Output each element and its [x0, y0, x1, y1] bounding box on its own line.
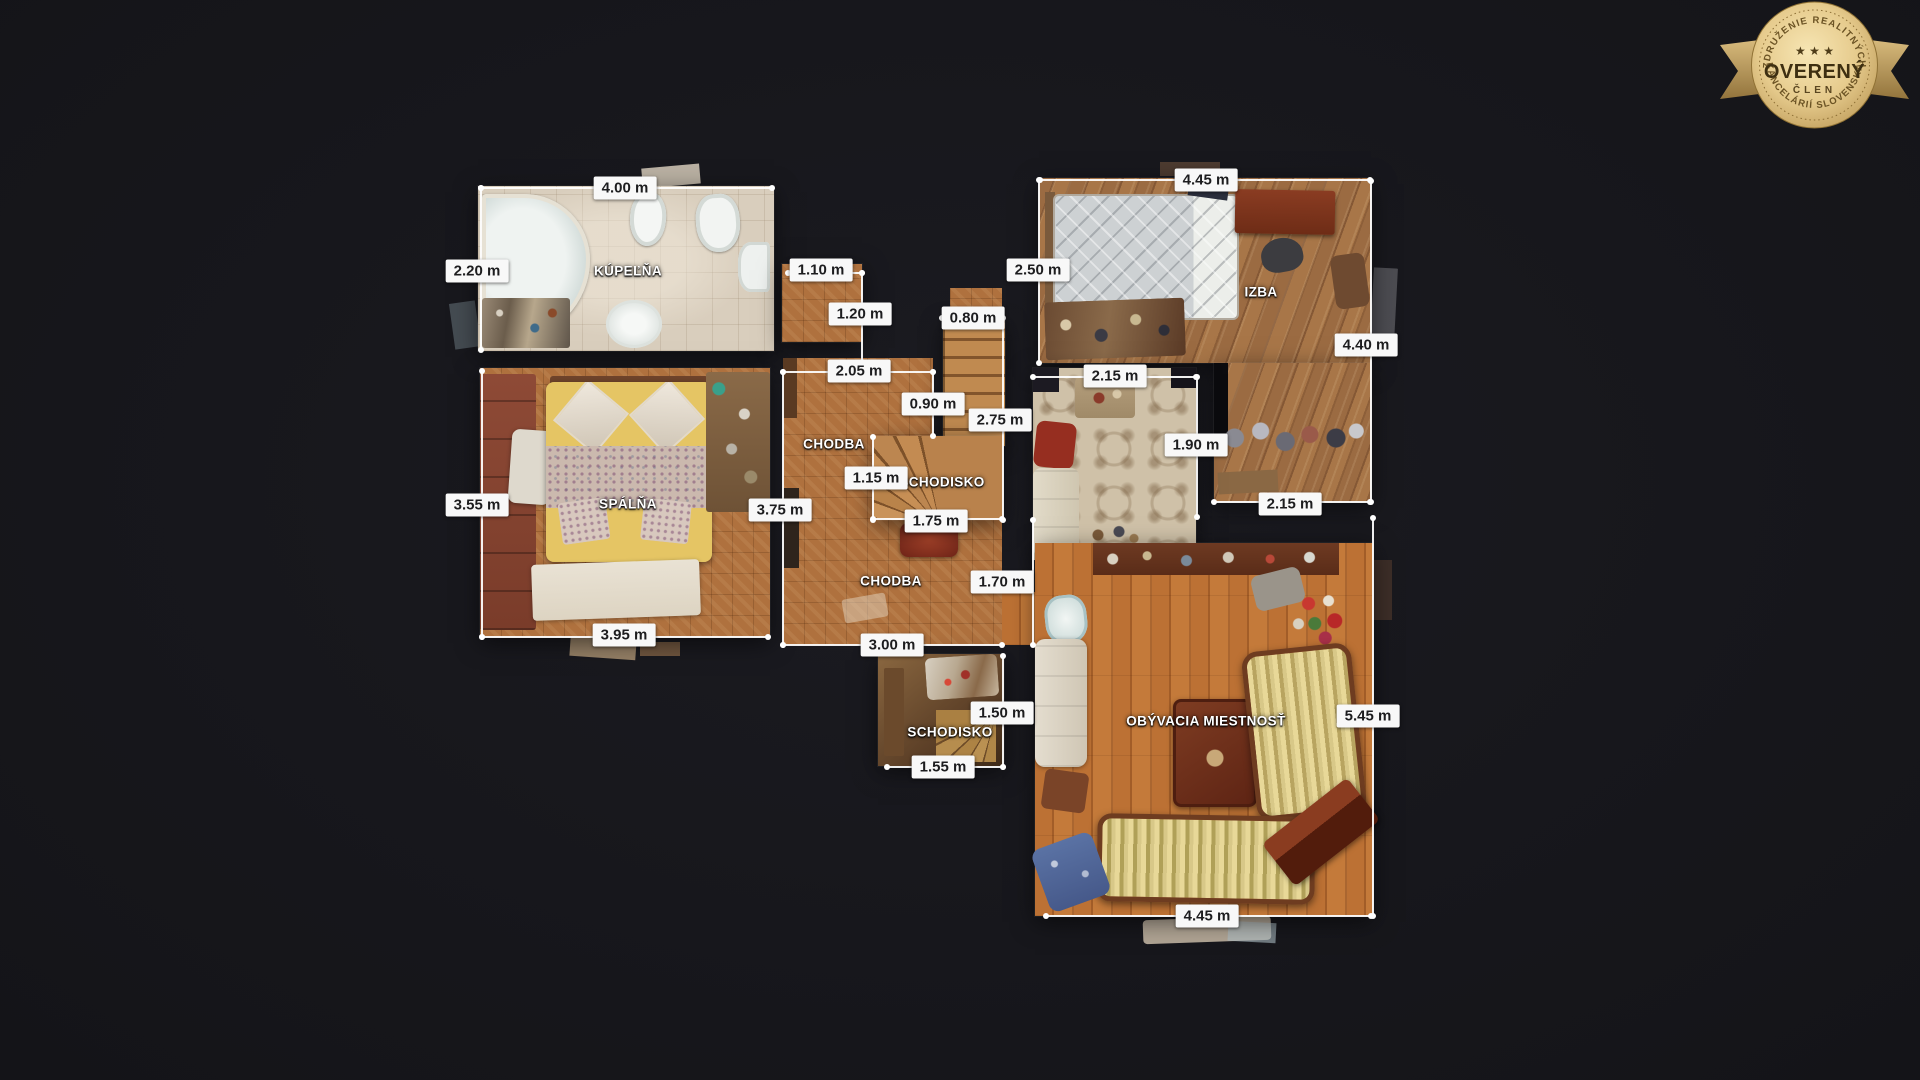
dim-entry-width: 1.10 m: [790, 259, 853, 282]
toilet: [694, 193, 742, 254]
label-chodba-upper: CHODBA: [803, 437, 865, 452]
dim-izba-depth: 2.50 m: [1007, 259, 1070, 282]
label-izba: IZBA: [1244, 285, 1277, 300]
room-izba[interactable]: [1039, 178, 1371, 363]
label-obyvacia: OBÝVACIA MIESTNOSŤ: [1126, 714, 1285, 729]
room-tiled-hall[interactable]: [1033, 368, 1196, 560]
bedroom-rug: [531, 559, 701, 621]
dim-kupelna-depth: 2.20 m: [446, 260, 509, 283]
dim-stairs-mid-width: 0.90 m: [902, 393, 965, 416]
desk: [1235, 189, 1336, 235]
dim-schodisko2-depth: 1.50 m: [971, 702, 1034, 725]
wardrobe: [706, 372, 770, 512]
verified-member-badge: ZDRUŽENIE REALITNÝCH KANCELÁRIÍ SLOVENSK…: [1712, 0, 1917, 135]
sink: [738, 242, 770, 292]
dim-stairs-top-width: 0.80 m: [942, 307, 1005, 330]
badge-stars: ★ ★ ★: [1795, 44, 1834, 58]
badge-subtitle: ČLEN: [1793, 83, 1836, 96]
dim-chodba-inner-width: 1.15 m: [845, 467, 908, 490]
scan-artifact: [449, 300, 481, 349]
dim-chodba-bottom-width: 3.00 m: [861, 634, 924, 657]
dim-entry-depth: 1.20 m: [829, 303, 892, 326]
label-schodisko-lower: SCHODISKO: [907, 725, 992, 740]
dim-stairs-height: 2.75 m: [969, 409, 1032, 432]
boards: [1217, 469, 1278, 494]
landing-clutter: [925, 654, 1000, 701]
white-couch: [1035, 639, 1087, 767]
label-spalna: SPÁLŇA: [599, 497, 657, 512]
toilet-bowl: [606, 300, 662, 348]
dim-spalna-width: 3.95 m: [593, 624, 656, 647]
dim-obyvacia-width: 4.45 m: [1176, 905, 1239, 928]
desk-chair: [1258, 235, 1305, 276]
floorplan-viewer: 4.00 m 2.20 m 1.10 m 1.20 m 2.05 m 0.80 …: [0, 0, 1920, 1080]
dim-spalna-depth: 3.55 m: [446, 494, 509, 517]
dim-chodba-depth: 3.75 m: [749, 499, 812, 522]
dim-stairs-exit-width: 1.75 m: [905, 510, 968, 533]
badge-title: OVERENÝ: [1764, 59, 1865, 83]
label-schodisko-upper: SCHODISKO: [899, 475, 984, 490]
bathroom-shelf-clutter: [482, 298, 570, 348]
stair-side-wall: [884, 668, 904, 756]
dim-tiled-depth: 1.90 m: [1165, 434, 1228, 457]
small-table: [1040, 768, 1089, 814]
izba-bench-clutter: [1044, 298, 1186, 361]
red-armchair: [1033, 420, 1078, 470]
dim-passage-depth: 1.70 m: [971, 571, 1034, 594]
dim-kupelna-width: 4.00 m: [594, 177, 657, 200]
room-izba-extension[interactable]: [1214, 363, 1371, 502]
dim-schodisko2-width: 1.55 m: [912, 756, 975, 779]
dim-chodba-width: 2.05 m: [828, 360, 891, 383]
dim-izba-ext-width: 2.15 m: [1259, 493, 1322, 516]
label-chodba-lower: CHODBA: [860, 574, 922, 589]
dim-obyvacia-depth: 5.45 m: [1337, 705, 1400, 728]
scan-artifact: [1374, 560, 1392, 620]
label-kupelna: KÚPEĽŇA: [594, 264, 662, 279]
dim-tiled-width: 2.15 m: [1084, 365, 1147, 388]
double-bed: [546, 382, 712, 562]
washbasin: [1043, 593, 1090, 645]
scan-artifact: [1370, 267, 1398, 342]
wall-stub: [1033, 368, 1059, 392]
passage[interactable]: [1002, 592, 1035, 645]
hall-shelf: [783, 358, 797, 418]
pillow: [629, 382, 705, 455]
pillow: [553, 382, 629, 455]
dim-izba-width: 4.45 m: [1175, 169, 1238, 192]
clothes-rack: [1220, 403, 1365, 473]
dim-izba-right: 4.40 m: [1335, 334, 1398, 357]
hall-rug: [841, 592, 888, 623]
flower-arrangement: [1282, 582, 1356, 654]
armchair: [1329, 252, 1370, 310]
room-obyvacia[interactable]: [1035, 543, 1373, 916]
sideboard-with-vases: [1093, 543, 1339, 575]
